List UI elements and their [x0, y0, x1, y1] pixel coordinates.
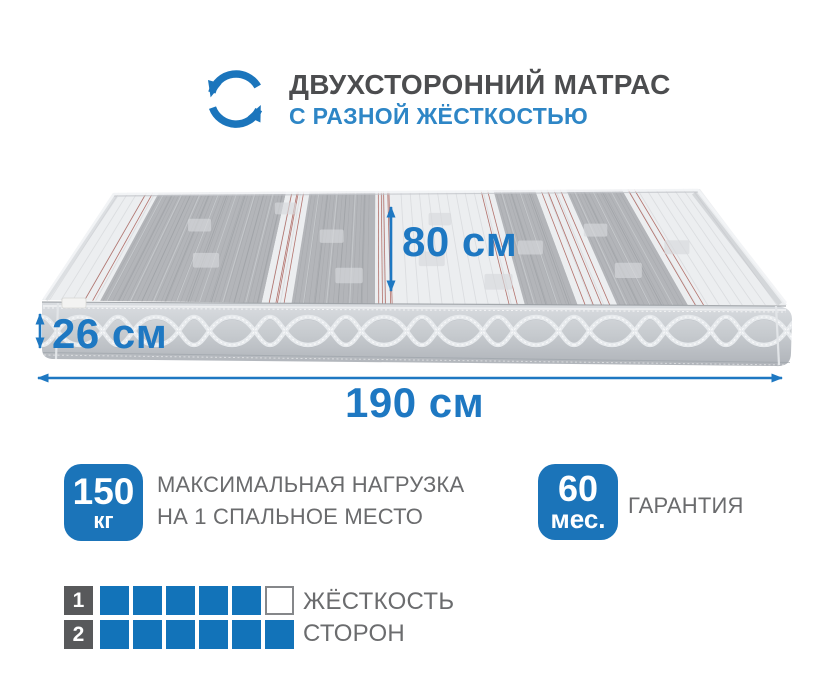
infographic: ДВУХСТОРОННИЙ МАТРАС С РАЗНОЙ ЖЁСТКОСТЬЮ [0, 0, 816, 700]
firmness-label-line2: СТОРОН [303, 618, 405, 650]
firmness-square-filled [100, 586, 129, 615]
firmness-label-line1: ЖЁСТКОСТЬ [303, 586, 454, 618]
mattress-illustration [0, 0, 816, 430]
max-load-badge: 150 кг [64, 464, 143, 541]
firmness-square-empty [265, 586, 294, 615]
height-dimension-label: 26 см [52, 312, 167, 356]
firmness-square-filled [166, 620, 195, 649]
length-dimension-label: 190 см [345, 381, 484, 425]
firmness-square-filled [100, 620, 129, 649]
max-load-label: МАКСИМАЛЬНАЯ НАГРУЗКА НА 1 СПАЛЬНОЕ МЕСТ… [157, 469, 464, 533]
warranty-value: 60 [558, 472, 598, 506]
depth-dimension-label: 80 см [402, 220, 517, 264]
warranty-label-line1: ГАРАНТИЯ [628, 490, 744, 522]
max-load-value: 150 [73, 474, 135, 510]
firmness-square-filled [232, 586, 261, 615]
firmness-square-filled [265, 620, 294, 649]
warranty-badge: 60 мес. [538, 464, 618, 540]
firmness-square-filled [133, 620, 162, 649]
warranty-label: ГАРАНТИЯ [628, 490, 744, 522]
firmness-row-number: 2 [64, 620, 93, 649]
max-load-unit: кг [93, 510, 113, 532]
mattress-tag [62, 298, 86, 308]
firmness-square-filled [166, 586, 195, 615]
firmness-row-side-1: 1 [64, 586, 298, 615]
firmness-square-filled [199, 586, 228, 615]
firmness-row-number: 1 [64, 586, 93, 615]
max-load-label-line2: НА 1 СПАЛЬНОЕ МЕСТО [157, 501, 464, 533]
firmness-square-filled [199, 620, 228, 649]
firmness-square-filled [232, 620, 261, 649]
firmness-square-filled [133, 586, 162, 615]
firmness-row-side-2: 2 [64, 620, 298, 649]
warranty-unit: мес. [550, 506, 605, 532]
max-load-label-line1: МАКСИМАЛЬНАЯ НАГРУЗКА [157, 469, 464, 501]
